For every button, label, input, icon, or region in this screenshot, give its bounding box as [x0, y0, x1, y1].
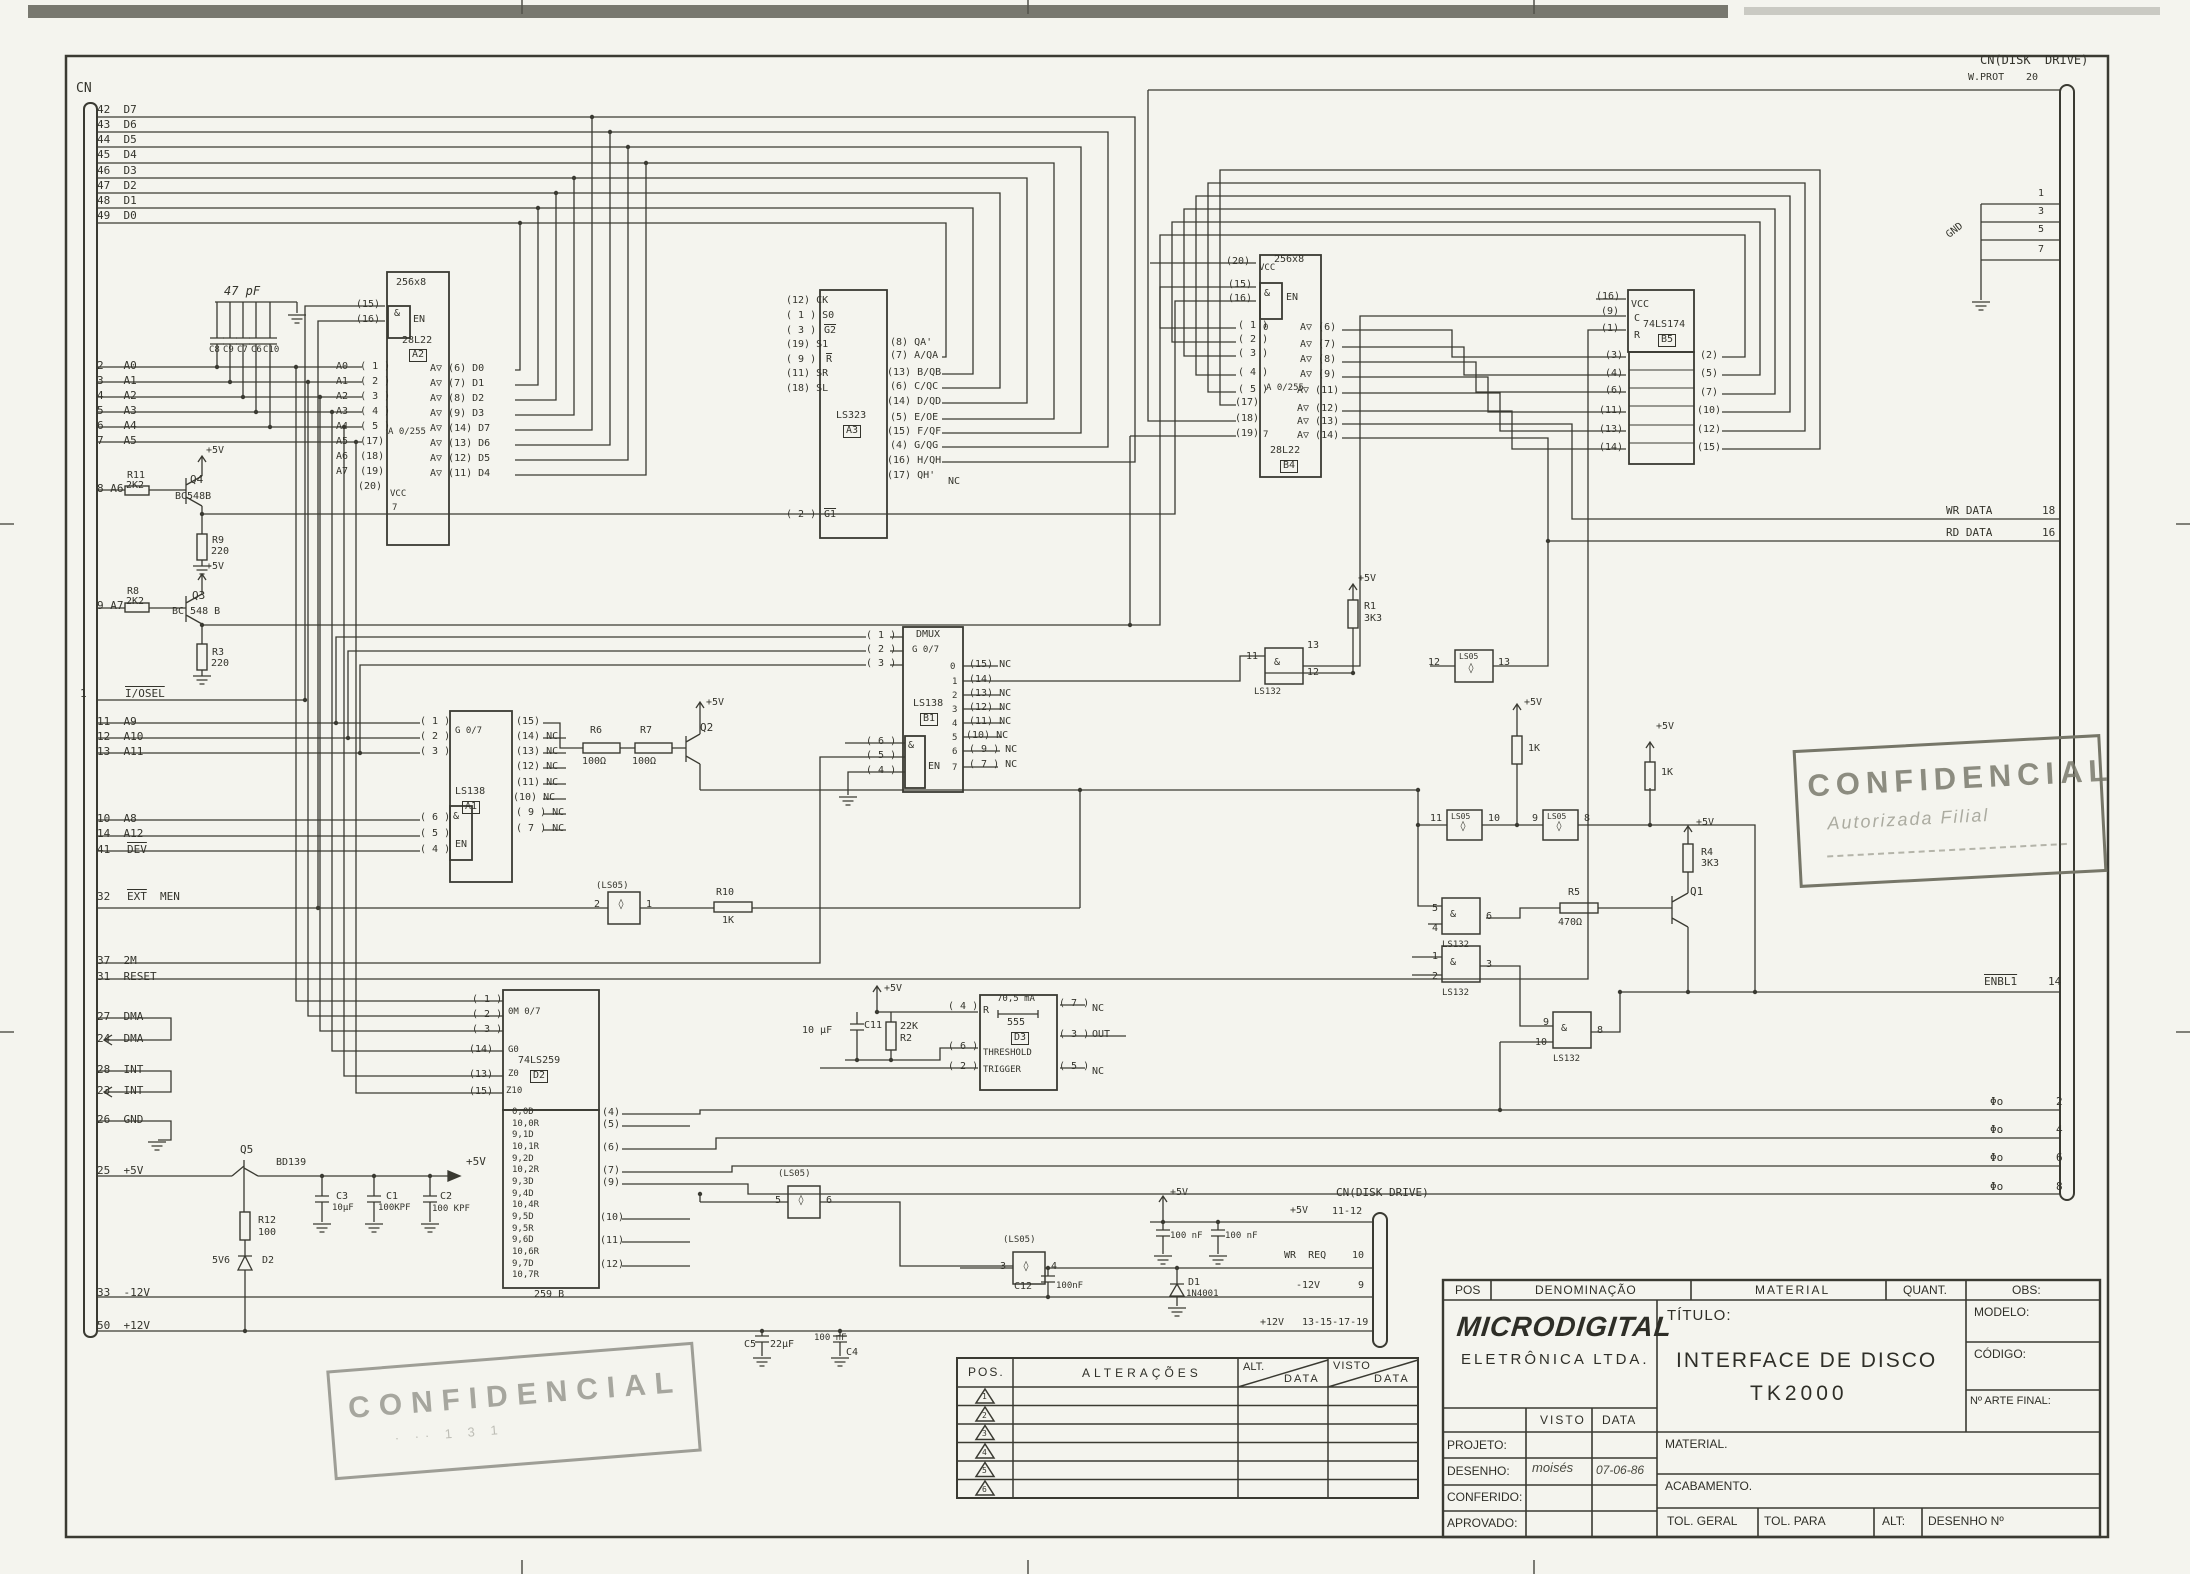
schematic-label: 2	[952, 692, 957, 701]
schematic-label: W.PROT	[1968, 73, 2004, 83]
schematic-label: &	[1264, 289, 1270, 299]
schematic-label: ENBL1	[1984, 976, 2017, 987]
schematic-label: A▽ (14)	[1297, 431, 1339, 441]
tb-codigo: CÓDIGO:	[1974, 1348, 2026, 1361]
schematic-label: 23 INT	[97, 1085, 143, 1096]
schematic-label: LS132	[1442, 989, 1469, 998]
schematic-label: A▽ (9)	[1300, 370, 1336, 380]
schematic-label: B1	[920, 713, 938, 726]
tb-pos: POS	[1455, 1284, 1480, 1297]
schematic-label: 4	[952, 720, 957, 729]
schematic-label: 44 D5	[97, 134, 137, 145]
schematic-label: (15)	[356, 300, 380, 310]
schematic-label: 10,4R	[512, 1201, 539, 1210]
schematic-label: Q4	[190, 474, 203, 485]
alteracoes-row-number: 5	[982, 1467, 987, 1475]
schematic-label: 2K2	[126, 597, 144, 607]
schematic-label: C9	[223, 346, 234, 355]
schematic-label: 6	[2056, 1152, 2063, 1163]
schematic-label: G1	[824, 510, 836, 520]
schematic-label: 10,0R	[512, 1120, 539, 1129]
schematic-label: (3)	[1605, 351, 1623, 361]
schematic-label: (14)	[1599, 443, 1623, 453]
tb-arte-final: Nº ARTE FINAL:	[1970, 1396, 2051, 1408]
schematic-label: ( 7 )	[1059, 999, 1089, 1009]
schematic-label: D3	[1011, 1032, 1029, 1045]
scan-artifact-band	[1744, 7, 2160, 15]
schematic-label: (19) S1	[786, 340, 828, 350]
schematic-label: 100 nF	[1225, 1232, 1258, 1241]
schematic-label: ◊	[1556, 822, 1562, 832]
alteracoes-visto-header: VISTO	[1333, 1361, 1371, 1373]
schematic-label: A▽ (11)	[1297, 386, 1339, 396]
schematic-label: EN	[413, 315, 425, 325]
schematic-label: I/OSEL	[125, 688, 165, 699]
schematic-label: 256x8	[1274, 255, 1304, 265]
schematic-label: ( 5 )	[420, 829, 450, 839]
schematic-label: C10	[263, 346, 279, 355]
schematic-label: -12V	[1296, 1281, 1320, 1291]
alteracoes-pos-header: POS.	[968, 1366, 1005, 1379]
alteracoes-data2-header: DATA	[1374, 1374, 1410, 1386]
schematic-label: (16)	[356, 315, 380, 325]
schematic-label: (6)	[1605, 386, 1623, 396]
schematic-label: LS05	[1451, 813, 1470, 821]
schematic-label: A▽ (13)	[1297, 417, 1339, 427]
titulo-line2: TK2000	[1750, 1383, 1848, 1405]
schematic-label: (5)	[602, 1120, 620, 1130]
schematic-label: 1	[80, 688, 87, 699]
schematic-label: (1)	[1601, 324, 1619, 334]
alteracoes-alt-header: ALT.	[1243, 1362, 1264, 1374]
schematic-label: (9)	[602, 1178, 620, 1188]
schematic-label: 10	[1535, 1038, 1547, 1048]
schematic-label: 0M 0/7	[508, 1008, 541, 1017]
schematic-label: 1	[2038, 189, 2044, 199]
schematic-label: 25 +5V	[97, 1165, 143, 1176]
schematic-label: ( 2 )	[786, 510, 816, 520]
schematic-label: A▽ (7) D1	[430, 379, 484, 389]
schematic-label: 100 KPF	[432, 1205, 470, 1214]
schematic-label: (4)	[1605, 369, 1623, 379]
schematic-label: 48 D1	[97, 195, 137, 206]
schematic-label: 28L22	[1270, 446, 1300, 456]
schematic-label: 2 A0	[97, 360, 137, 371]
schematic-label: 100Ω	[582, 757, 606, 767]
schematic-label: 9	[1358, 1281, 1364, 1291]
schematic-label: (15)	[469, 1087, 493, 1097]
schematic-label: R2	[900, 1034, 912, 1044]
schematic-label: (5)	[1700, 369, 1718, 379]
schematic-label: ( 2 )	[472, 1010, 502, 1020]
schematic-label: &	[394, 309, 400, 319]
schematic-label: 10,7R	[512, 1271, 539, 1280]
schematic-label: (12) NC	[516, 762, 558, 772]
schematic-label: 13-15-17-19	[1302, 1318, 1368, 1328]
schematic-label: 11 A9	[97, 716, 137, 727]
schematic-label: (11)	[600, 1236, 624, 1246]
tb-desenho-visto: moisés	[1532, 1461, 1573, 1475]
schematic-label: (14) D/QD	[887, 397, 941, 407]
schematic-label: +5V	[1524, 698, 1542, 708]
schematic-label: (20)	[358, 482, 382, 492]
schematic-label: 5V6	[212, 1256, 230, 1266]
schematic-label: +5V	[206, 446, 224, 456]
schematic-label: 5 A3	[97, 405, 137, 416]
schematic-label: 8	[1584, 814, 1590, 824]
schematic-label: ◊	[1460, 822, 1466, 832]
schematic-label: 100 nF	[1170, 1232, 1203, 1241]
schematic-label: ( 1 )	[866, 631, 896, 641]
schematic-label: 10 μF	[802, 1026, 832, 1036]
schematic-label: A3 ( 4 )	[336, 407, 390, 417]
schematic-label: 9,2D	[512, 1155, 534, 1164]
schematic-label: 9,3D	[512, 1178, 534, 1187]
schematic-label: Φo	[1990, 1124, 2003, 1135]
schematic-label: 10	[1352, 1251, 1364, 1261]
schematic-label: 0	[1263, 324, 1268, 333]
schematic-label: ( 1 )	[472, 995, 502, 1005]
schematic-label: 5	[775, 1196, 781, 1206]
schematic-label: ◊	[1468, 664, 1474, 674]
schematic-label: +5V	[1696, 818, 1714, 828]
tb-quant: QUANT.	[1903, 1284, 1947, 1297]
schematic-label: R4	[1701, 848, 1713, 858]
schematic-label: (9)	[1601, 307, 1619, 317]
schematic-label: A▽ (8)	[1300, 355, 1336, 365]
chip-b5-box	[1629, 352, 1694, 464]
schematic-label: 5	[952, 734, 957, 743]
tb-aprovado: APROVADO:	[1447, 1517, 1517, 1530]
schematic-label: 74LS259	[518, 1056, 560, 1066]
company-logo: MICRODIGITAL	[1455, 1312, 1673, 1341]
schematic-label: ( 4 )	[1238, 368, 1268, 378]
schematic-label: G2	[824, 326, 836, 336]
schematic-label: 12 A10	[97, 731, 143, 742]
schematic-label: TRIGGER	[983, 1066, 1021, 1075]
schematic-label: ( 5 )	[1059, 1062, 1089, 1072]
schematic-label: (13)	[1599, 425, 1623, 435]
schematic-label: ( 5 )	[866, 751, 896, 761]
schematic-label: CN	[76, 82, 92, 95]
schematic-label: (13) B/QB	[887, 368, 941, 378]
schematic-label: Φo	[1990, 1152, 2003, 1163]
schematic-label: (13) NC	[516, 747, 558, 757]
schematic-label: 12	[1307, 668, 1319, 678]
schematic-label: (15) NC	[969, 660, 1011, 670]
schematic-label: 13	[1498, 658, 1510, 668]
schematic-label: 9,1D	[512, 1131, 534, 1140]
schematic-label: (19)	[1235, 429, 1259, 439]
schematic-label: (17)	[1235, 398, 1259, 408]
cn-connector-bar	[84, 103, 97, 1337]
schematic-label: 14 A12	[97, 828, 143, 839]
schematic-label: &	[1274, 658, 1280, 668]
schematic-label: (4)	[602, 1108, 620, 1118]
schematic-label: 100	[258, 1228, 276, 1238]
schematic-label: C	[1634, 314, 1640, 324]
schematic-label: &	[1450, 958, 1456, 968]
schematic-label: 11	[1430, 814, 1442, 824]
tb-conferido: CONFERIDO:	[1447, 1491, 1522, 1504]
schematic-label: (14) NC	[516, 732, 558, 742]
schematic-label: 10	[1488, 814, 1500, 824]
schematic-label: ◊	[798, 1196, 804, 1206]
tb-obs: OBS:	[2012, 1284, 2041, 1297]
schematic-label: ( 1 ) S0	[786, 311, 834, 321]
schematic-label: (LS05)	[596, 882, 629, 891]
schematic-label: 70,5 mA	[997, 995, 1035, 1004]
schematic-label: 259 B	[534, 1290, 564, 1300]
schematic-label: G0	[508, 1046, 519, 1055]
schematic-label: A0 ( 1 )	[336, 362, 390, 372]
schematic-label: WR REQ	[1284, 1251, 1326, 1261]
schematic-label: 31 RESET	[97, 971, 157, 982]
schematic-label: 28L22	[402, 336, 432, 346]
schematic-label: LS132	[1553, 1055, 1580, 1064]
schematic-label: 1	[1432, 952, 1438, 962]
schematic-label: (12) NC	[969, 703, 1011, 713]
schematic-label: MEN	[160, 891, 180, 902]
tb-data: DATA	[1602, 1414, 1636, 1427]
schematic-label: (16)	[1596, 292, 1620, 302]
schematic-label: LS132	[1442, 941, 1469, 950]
titulo-label: TÍTULO:	[1667, 1308, 1732, 1324]
schematic-label: (12) CK	[786, 296, 828, 306]
schematic-label: (18) SL	[786, 384, 828, 394]
tb-material-h: MATERIAL	[1755, 1284, 1830, 1297]
schematic-label: (18)	[1235, 414, 1259, 424]
schematic-label: 8	[1597, 1026, 1603, 1036]
schematic-label: 5	[2038, 225, 2044, 235]
schematic-label: LS138	[913, 699, 943, 709]
schematic-label: (7)	[602, 1166, 620, 1176]
schematic-label: A▽ (9) D3	[430, 409, 484, 419]
schematic-label: Q1	[1690, 886, 1703, 897]
tb-tol-geral: TOL. GERAL	[1667, 1515, 1737, 1528]
schematic-label: 1	[952, 678, 957, 687]
schematic-label: C4	[846, 1348, 858, 1358]
schematic-label: 1K	[1528, 744, 1540, 754]
schematic-label: (8) QA'	[890, 338, 932, 348]
schematic-label: 10μF	[332, 1204, 354, 1213]
schematic-label: 43 D6	[97, 119, 137, 130]
schematic-label: 28 INT	[97, 1064, 143, 1075]
schematic-label: 3	[952, 706, 957, 715]
schematic-label: R3	[212, 648, 224, 658]
schematic-label: VCC	[1631, 300, 1649, 310]
schematic-label: C8	[209, 346, 220, 355]
stamp-left-text: CONFIDENCIAL	[347, 1366, 683, 1426]
schematic-label: BD139	[276, 1158, 306, 1168]
schematic-label: 10,2R	[512, 1166, 539, 1175]
schematic-label: (10)	[600, 1213, 624, 1223]
schematic-label: +5V	[206, 562, 224, 572]
schematic-label: (LS05)	[778, 1170, 811, 1179]
schematic-label: 3K3	[1364, 614, 1382, 624]
schematic-label: THRESHOLD	[983, 1049, 1032, 1058]
schematic-label: 47 D2	[97, 180, 137, 191]
schematic-label: LS132	[1254, 688, 1281, 697]
schematic-label: (15)	[516, 717, 540, 727]
schematic-label: 100Ω	[632, 757, 656, 767]
schematic-label: ( 4 )	[420, 845, 450, 855]
schematic-label: Q5	[240, 1144, 253, 1155]
schematic-label: Z10	[506, 1087, 522, 1096]
schematic-label: 10 A8	[97, 813, 137, 824]
schematic-label: 18	[2042, 505, 2055, 516]
schematic-label: 0,0D	[512, 1108, 534, 1117]
titulo-line1: INTERFACE DE DISCO	[1676, 1350, 1937, 1372]
tb-acabamento: ACABAMENTO.	[1665, 1480, 1752, 1493]
scan-artifact-band	[28, 5, 1728, 18]
schematic-label: 4	[1051, 1262, 1057, 1272]
schematic-label: 8 A6	[97, 483, 124, 494]
schematic-label: 13	[1307, 641, 1319, 651]
schematic-label: 3	[1000, 1262, 1006, 1272]
schematic-label: 33 -12V	[97, 1287, 150, 1298]
schematic-label: 7	[952, 764, 957, 773]
schematic-label: A3	[843, 425, 861, 438]
stamp-right-text: CONFIDENCIAL	[1807, 752, 2115, 804]
schematic-label: A2	[409, 349, 427, 362]
schematic-label: 9	[1543, 1018, 1549, 1028]
schematic-label: 45 D4	[97, 149, 137, 160]
tb-desenho: DESENHO:	[1447, 1465, 1510, 1478]
schematic-label: 9,4D	[512, 1190, 534, 1199]
schematic-label: A▽ (11) D4	[430, 469, 490, 479]
schematic-label: 470Ω	[1558, 918, 1582, 928]
schematic-label: ( 7 ) NC	[516, 824, 564, 834]
schematic-label: 3	[1486, 960, 1492, 970]
schematic-label: Q2	[700, 722, 713, 733]
schematic-label: A7 (19)	[336, 467, 384, 477]
schematic-label: LS05	[1459, 653, 1478, 661]
schematic-label: &	[1450, 910, 1456, 920]
schematic-label: 41	[97, 844, 110, 855]
schematic-label: 8	[2056, 1181, 2063, 1192]
schematic-label: ( 3 )	[786, 326, 816, 336]
schematic-label: ( 3 )	[866, 659, 896, 669]
schematic-label: (2)	[1700, 351, 1718, 361]
schematic-label: (10) NC	[966, 731, 1008, 741]
schematic-label: ( 4 )	[948, 1002, 978, 1012]
schematic-label: LS05	[1547, 813, 1566, 821]
tb-tol-para: TOL. PARA	[1764, 1515, 1826, 1528]
schematic-label: &	[453, 812, 459, 822]
schematic-label: VCC	[390, 490, 406, 499]
schematic-label: A6 (18)	[336, 452, 384, 462]
schematic-label: 7	[2038, 245, 2044, 255]
schematic-label: 37 2M	[97, 955, 137, 966]
schematic-label: R6	[590, 726, 602, 736]
schematic-label: (10)	[1697, 406, 1721, 416]
schematic-label: R	[983, 1006, 989, 1016]
schematic-label: NC	[1092, 1004, 1104, 1014]
schematic-label: A1 ( 2 )	[336, 377, 390, 387]
schematic-label: ( 6 )	[866, 737, 896, 747]
tb-alt: ALT:	[1882, 1515, 1905, 1528]
schematic-label: 100nF	[1056, 1282, 1083, 1291]
schematic-label: (17) QH'	[887, 471, 935, 481]
schematic-label: &	[908, 741, 914, 751]
schematic-label: (6)	[602, 1143, 620, 1153]
schematic-label: ( 6 )	[948, 1042, 978, 1052]
schematic-label: LS323	[836, 411, 866, 421]
schematic-label: A2 ( 3 )	[336, 392, 390, 402]
schematic-label: CN(DISK DRIVE)	[1336, 1187, 1429, 1198]
schematic-label: Φo	[1990, 1181, 2003, 1192]
schematic-label: 22K	[900, 1022, 918, 1032]
schematic-label: 49 D0	[97, 210, 137, 221]
alteracoes-row-number: 1	[982, 1393, 987, 1401]
schematic-label: 2	[594, 900, 600, 910]
schematic-label: A▽ (14) D7	[430, 424, 490, 434]
schematic-label: ( 3 )	[1059, 1030, 1089, 1040]
schematic-label: 47 pF	[224, 285, 260, 297]
schematic-label: 14	[2048, 976, 2061, 987]
schematic-label: 220	[211, 659, 229, 669]
schematic-label: 7	[1263, 431, 1268, 440]
schematic-label: B4	[1280, 460, 1298, 473]
tb-desenho-data: 07-06-86	[1596, 1464, 1644, 1477]
schematic-label: 3	[2038, 207, 2044, 217]
schematic-label: ( 3 )	[472, 1025, 502, 1035]
schematic-label: B5	[1658, 334, 1676, 347]
schematic-label: NC	[948, 477, 960, 487]
schematic-label: ( 1 )	[420, 717, 450, 727]
schematic-label: (16)	[1228, 294, 1252, 304]
schematic-label: A▽ (8) D2	[430, 394, 484, 404]
schematic-label: G 0/7	[912, 646, 939, 655]
schematic-label: +5V	[466, 1156, 486, 1167]
schematic-label: R10	[716, 888, 734, 898]
schematic-label: 256x8	[396, 278, 426, 288]
schematic-label: EXT	[127, 891, 147, 902]
schematic-label: (12)	[1697, 425, 1721, 435]
schematic-label: 9,6D	[512, 1236, 534, 1245]
schematic-label: 32	[97, 891, 110, 902]
alteracoes-row-number: 3	[982, 1430, 987, 1438]
schematic-label: (15)	[1697, 443, 1721, 453]
schematic-label: 1K	[1661, 768, 1673, 778]
schematic-label: ( 9 ) NC	[969, 745, 1017, 755]
schematic-label: 74LS174	[1643, 320, 1685, 330]
schematic-label: 9,7D	[512, 1260, 534, 1269]
schematic-label: G 0/7	[455, 727, 482, 736]
schematic-label: A▽ (12) D5	[430, 454, 490, 464]
schematic-label: OUT	[1092, 1030, 1110, 1040]
schematic-label: ( 2 )	[948, 1062, 978, 1072]
schematic-label: +5V	[1290, 1206, 1308, 1216]
schematic-label: C2	[440, 1192, 452, 1202]
schematic-label: ( 2 )	[1238, 335, 1268, 345]
schematic-label: LS138	[455, 787, 485, 797]
schematic-label: (11) SR	[786, 369, 828, 379]
schematic-label: DMUX	[916, 630, 940, 640]
schematic-label: A▽ (13) D6	[430, 439, 490, 449]
schematic-label: 11-12	[1332, 1207, 1362, 1217]
schematic-label: C3	[336, 1192, 348, 1202]
schematic-label: 220	[211, 547, 229, 557]
tb-modelo: MODELO:	[1974, 1306, 2029, 1319]
schematic-label: 10,6R	[512, 1248, 539, 1257]
schematic-label: Φo	[1990, 1096, 2003, 1107]
tb-denominacao: DENOMINAÇÃO	[1535, 1284, 1637, 1297]
schematic-label: BC 548 B	[172, 607, 220, 617]
schematic-label: C11	[864, 1021, 882, 1031]
schematic-label: 1	[646, 900, 652, 910]
